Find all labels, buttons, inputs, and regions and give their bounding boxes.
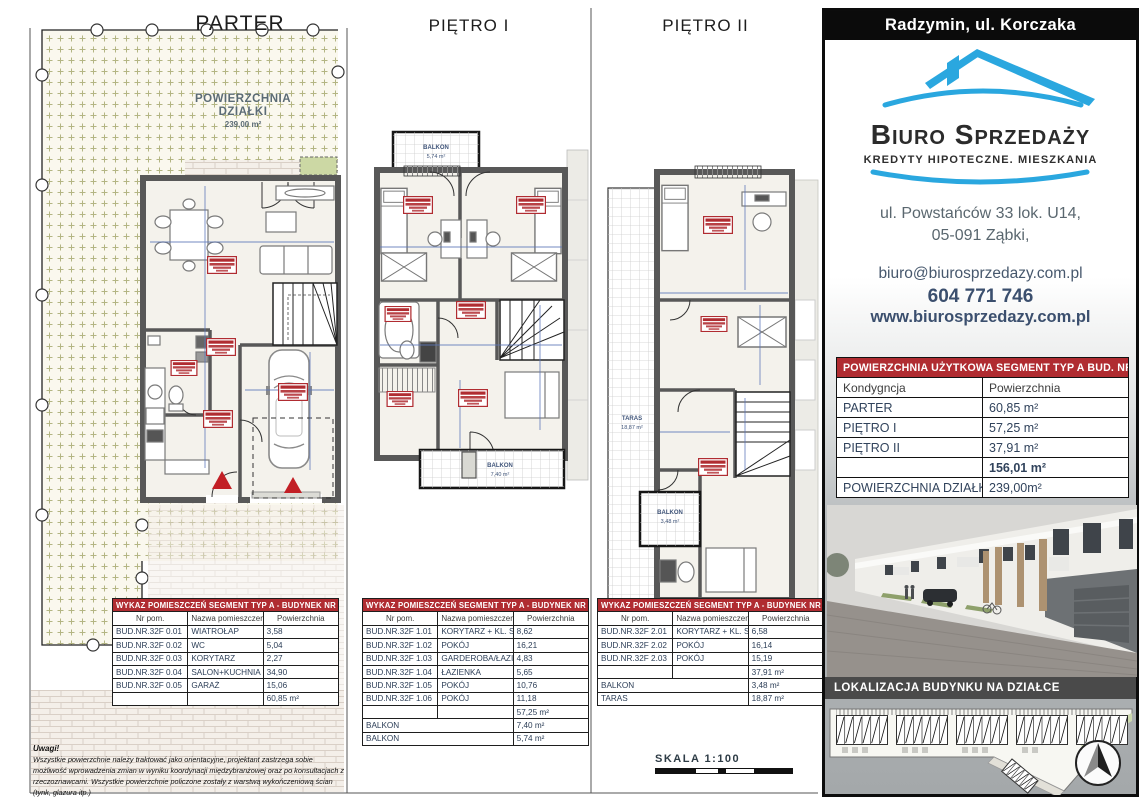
room-label [279,384,308,401]
pietro1-room-table: WYKAZ POMIESZCZEŃ SEGMENT TYP A - BUDYNE… [362,598,589,746]
wardrobe [379,368,435,392]
room-label [404,197,433,214]
real-estate-flyer-page: POWIERZCHNIA DZIAŁKI 239,00 m² [0,0,1145,806]
bed-bottom [505,372,559,418]
bed-bottom [706,548,756,592]
svg-text:BALKON: BALKON [657,510,683,516]
svg-text:DZIAŁKI: DZIAŁKI [219,106,268,118]
logo-roof-icon [855,45,1110,117]
pietro2-floor-plan: TARAS 18,87 m² [608,166,818,600]
building-photo [827,505,1137,677]
svg-text:5,74 m²: 5,74 m² [427,154,446,160]
svg-text:BALKON: BALKON [423,145,449,151]
svg-text:18,87 m²: 18,87 m² [621,425,643,431]
svg-text:BALKON: BALKON [487,463,513,469]
info-sidebar: Radzymin, ul. Korczaka Biuro Sprzedaży K… [822,8,1139,797]
parter-floor-plan [143,178,338,503]
room-label [208,257,237,274]
company-address: ul. Powstańców 33 lok. U14, 05-091 Ząbki… [825,203,1136,246]
room-label [704,217,733,234]
site-plan [826,701,1137,795]
notes-title: Uwagi! [33,744,347,753]
notes-body: Wszystkie powierzchnie należy traktować … [33,755,347,799]
stairs [736,392,790,476]
scale-indicator: SKALA 1:100 [655,753,795,774]
svg-text:239,00 m²: 239,00 m² [225,120,262,129]
location-header: Radzymin, ul. Korczaka [825,11,1136,40]
phone-number: 604 771 746 [825,286,1136,308]
address-line-1: ul. Powstańców 33 lok. U14, [825,203,1136,225]
room-label [385,306,411,321]
room-label [699,459,728,476]
logo-swoosh-icon [865,168,1095,188]
svg-text:TARAS: TARAS [622,416,642,422]
address-line-2: 05-091 Ząbki, [825,225,1136,247]
planter-box [300,157,337,175]
svg-text:POWIERZCHNIA: POWIERZCHNIA [195,93,291,105]
compass-icon [1076,741,1120,785]
scale-label: SKALA 1:100 [655,753,795,765]
scale-bar [655,768,793,774]
stairs [500,300,564,360]
location-plan-header: LOKALIZACJA BUDYNKU NA DZIAŁCE [825,677,1136,699]
svg-text:7,40 m²: 7,40 m² [491,472,510,478]
website-link[interactable]: www.biurosprzedazy.com.pl [825,308,1136,327]
pietro1-title: PIĘTRO I [350,16,588,36]
room-label [207,339,236,356]
stairs [273,283,337,345]
pietro1-floor-plan: BALKON 5,74 m² [377,132,588,488]
parter-title: PARTER [130,12,350,36]
room-label [517,197,546,214]
parter-room-table: WYKAZ POMIESZCZEŃ SEGMENT TYP A - BUDYNE… [112,598,339,706]
room-label [457,302,486,319]
company-tagline: KREDYTY HIPOTECZNE. MIESZKANIA [825,154,1136,166]
room-label [171,360,197,375]
usable-area-table: POWIERZCHNIA UŻYTKOWA SEGMENT TYP A BUD.… [836,357,1129,498]
disclaimer-notes: Uwagi! Wszystkie powierzchnie należy tra… [33,744,347,799]
balcony-bottom: BALKON 7,40 m² [420,450,564,488]
pietro2-title: PIĘTRO II [593,16,818,36]
contact-block: biuro@biurosprzedazy.com.pl 604 771 746 … [825,265,1136,327]
room-label [204,411,233,428]
svg-text:3,48 m²: 3,48 m² [661,519,680,525]
company-name: Biuro Sprzedaży [825,119,1136,151]
balcony: BALKON 3,48 m² [640,492,700,546]
room-label [387,391,413,406]
pietro2-room-table: WYKAZ POMIESZCZEŃ SEGMENT TYP A - BUDYNE… [597,598,824,706]
room-label [459,390,488,407]
room-label [701,316,727,331]
email-link[interactable]: biuro@biurosprzedazy.com.pl [825,265,1136,283]
